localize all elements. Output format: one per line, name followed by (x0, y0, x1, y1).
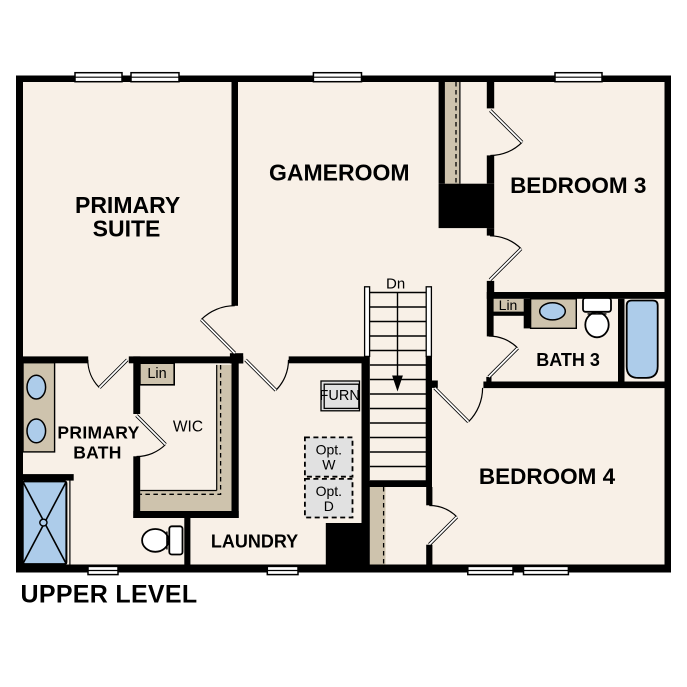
svg-text:Dn: Dn (386, 276, 405, 293)
svg-text:BATH: BATH (73, 443, 122, 463)
svg-text:UPPER LEVEL: UPPER LEVEL (21, 580, 198, 608)
svg-text:Opt.: Opt. (316, 442, 342, 458)
svg-text:BATH 3: BATH 3 (536, 350, 600, 370)
svg-text:LAUNDRY: LAUNDRY (211, 531, 298, 551)
svg-text:PRIMARY: PRIMARY (57, 422, 139, 442)
svg-text:Lin: Lin (147, 366, 166, 382)
svg-text:Lin: Lin (499, 297, 518, 313)
svg-text:PRIMARY: PRIMARY (75, 192, 180, 218)
svg-text:FURN: FURN (320, 388, 360, 404)
svg-text:GAMEROOM: GAMEROOM (269, 160, 410, 186)
svg-text:BEDROOM 3: BEDROOM 3 (510, 173, 646, 198)
svg-text:Opt.: Opt. (316, 483, 342, 499)
svg-text:BEDROOM 4: BEDROOM 4 (479, 464, 616, 489)
svg-text:W: W (322, 456, 336, 472)
svg-text:SUITE: SUITE (93, 215, 161, 241)
svg-text:D: D (324, 498, 334, 514)
svg-text:WIC: WIC (173, 419, 203, 436)
